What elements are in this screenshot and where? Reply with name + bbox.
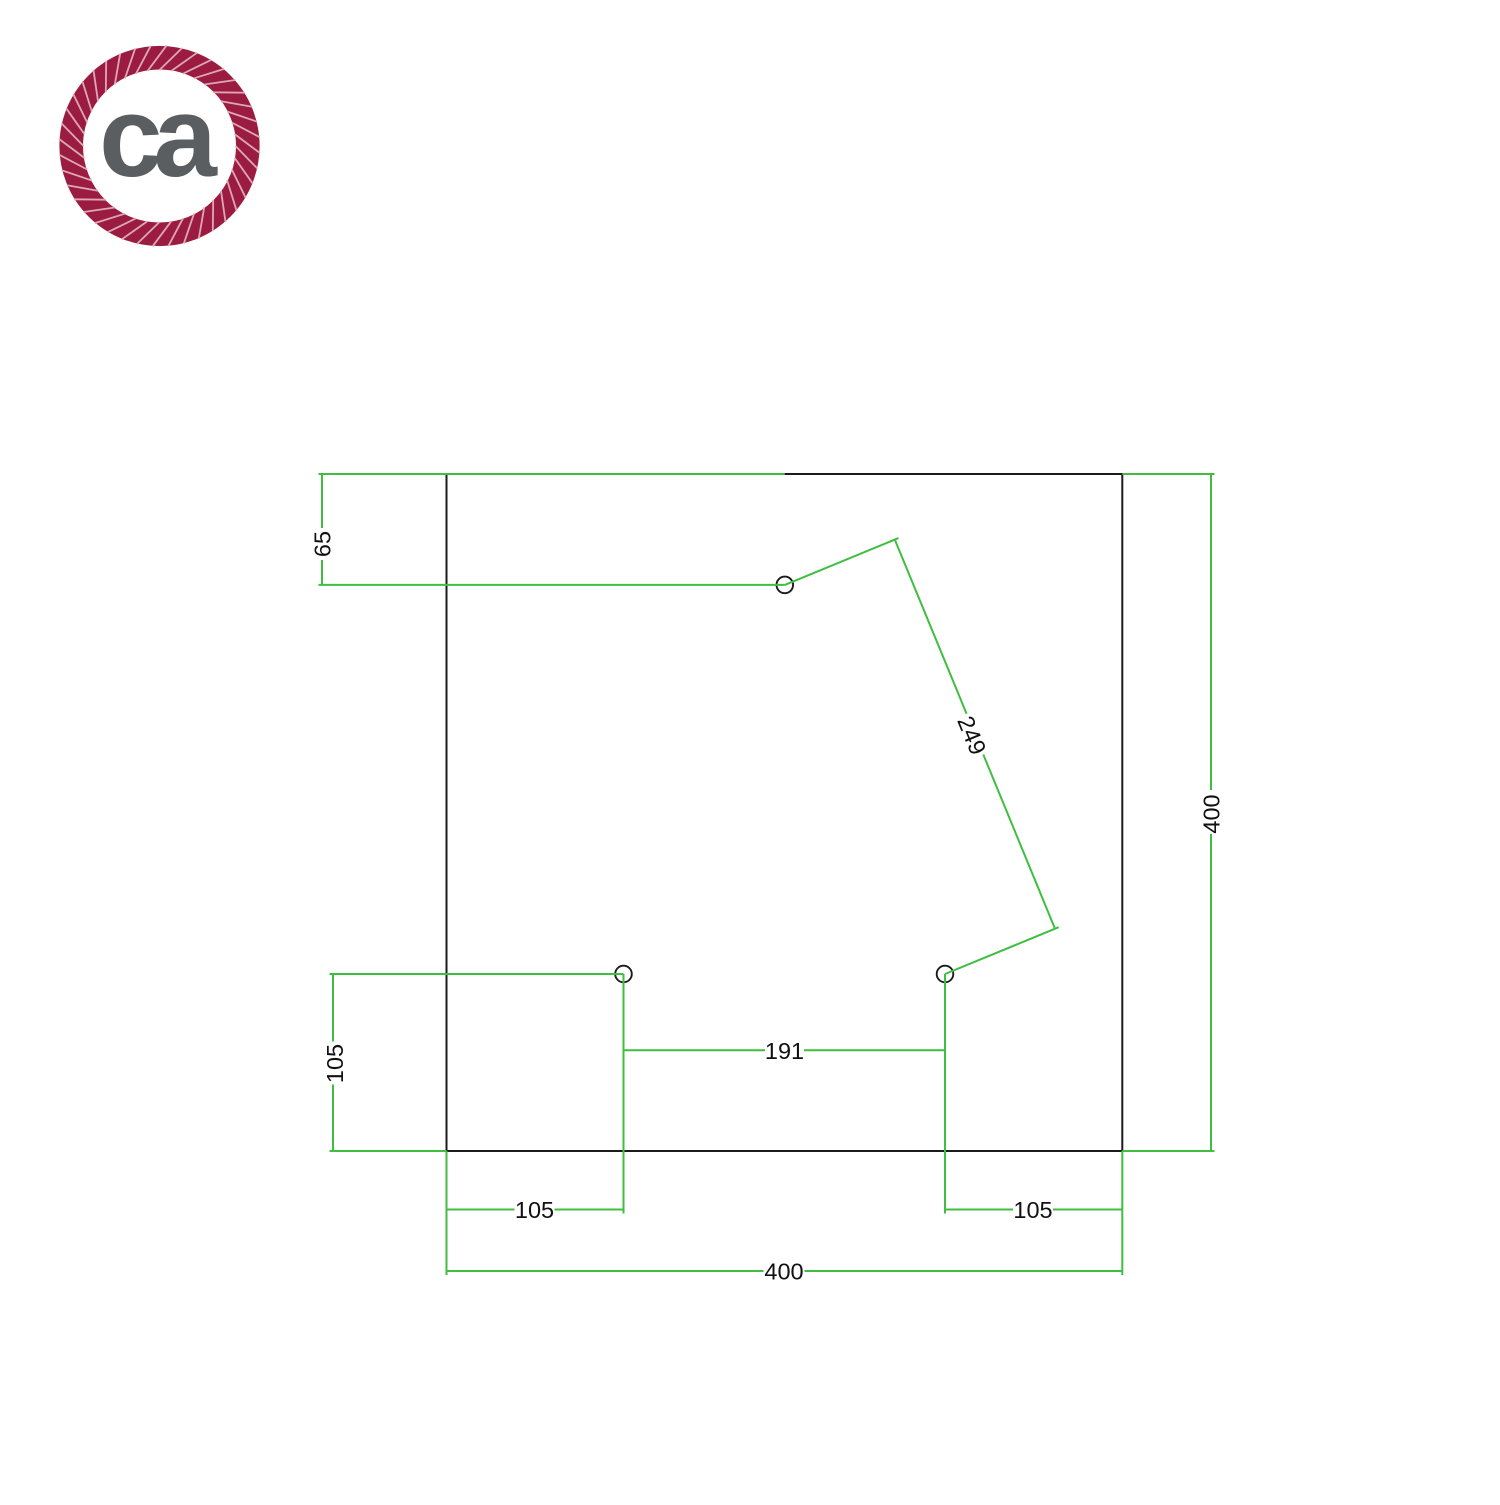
- svg-text:191: 191: [765, 1038, 804, 1064]
- svg-text:249: 249: [952, 712, 991, 758]
- svg-text:65: 65: [310, 531, 336, 557]
- svg-text:105: 105: [1013, 1197, 1052, 1223]
- svg-text:105: 105: [322, 1044, 348, 1083]
- svg-text:ca: ca: [99, 74, 218, 201]
- svg-text:400: 400: [1199, 794, 1225, 833]
- svg-text:400: 400: [764, 1259, 803, 1285]
- svg-text:105: 105: [515, 1197, 554, 1223]
